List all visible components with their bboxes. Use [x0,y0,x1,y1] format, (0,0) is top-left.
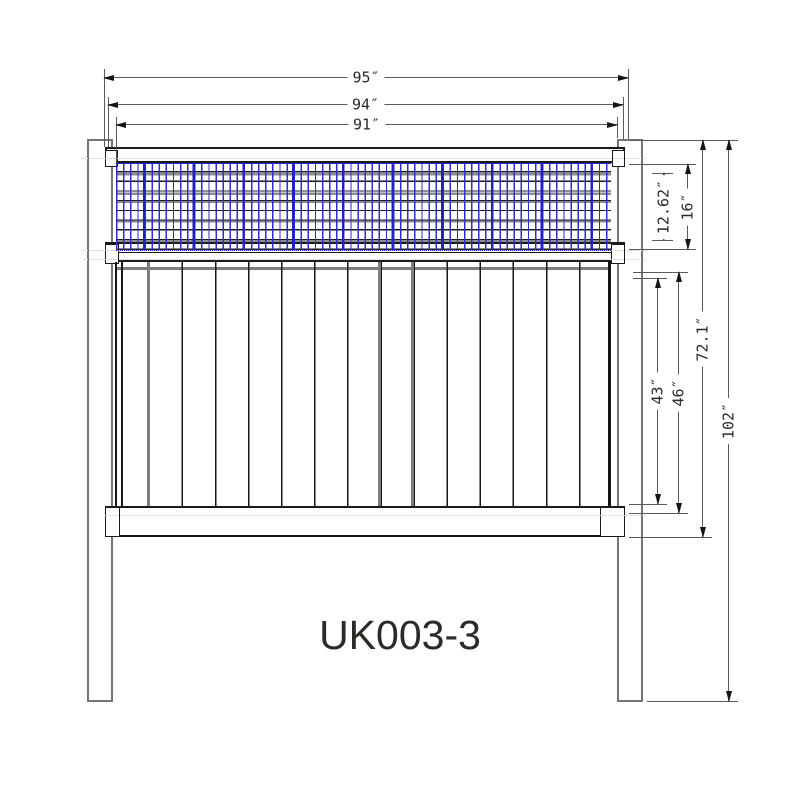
dimension-label: 46″ [671,374,688,411]
dimension-label: 72.1″ [695,311,712,366]
extension-line [647,701,738,702]
picket-panel [115,262,611,506]
middle-rail-centerline [82,250,646,251]
middle-rail-right-bracket [611,244,625,264]
dimension-label: 43″ [650,372,667,409]
extension-line [104,69,105,147]
middle-rail-divider [106,252,624,253]
extension-line [630,140,738,141]
fence-technical-drawing: 95″ 94″ 91″ 12.62″ 16″ 43″ 46″ 72.1″ 102… [0,0,800,800]
model-number-label: UK003-3 [0,612,800,659]
gray-picket-line [411,262,414,506]
top-rail [105,147,625,163]
gray-picket-line [147,262,150,506]
gray-picket-line [378,262,381,506]
bottom-rail-left-bracket [105,507,120,537]
middle-rail-centerline-2 [84,259,644,260]
extension-line [629,504,667,505]
extension-line [633,278,667,279]
dimension-label: 102″ [721,397,738,443]
dimension-label: 95″ [347,70,384,87]
dimension-label: 91″ [348,117,385,134]
top-rail-centerline [82,158,646,159]
dimension-label: 12.62″ [656,174,673,238]
bottom-rail [105,506,625,537]
wire-mesh-lattice [116,163,611,251]
extension-line [617,117,618,138]
bottom-rail-right-bracket [600,507,625,537]
dimension-label: 94″ [347,97,384,114]
panel-inner-edge-line [121,262,123,506]
bottom-rail-centerline [105,515,645,516]
dimension-label: 16″ [680,188,697,225]
